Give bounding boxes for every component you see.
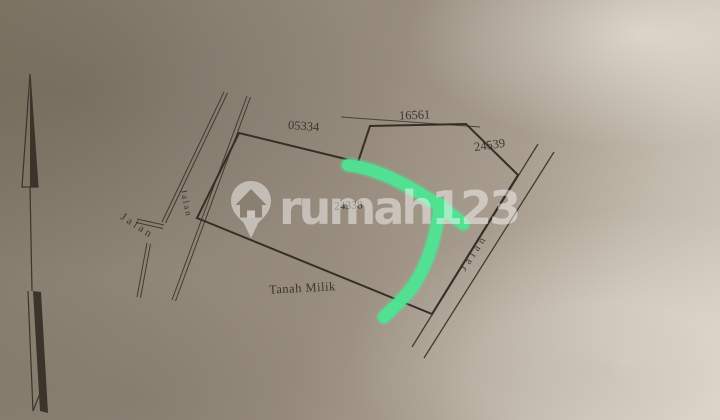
map-pin-house-icon bbox=[231, 181, 271, 238]
north-jog-label: 16561 bbox=[399, 108, 431, 122]
north-boundary-label: 05334 bbox=[288, 119, 320, 134]
photographed-survey-sketch: 05334 16561 24539 24338 Tanah Milik Jala… bbox=[0, 0, 720, 420]
north-arrow-icon bbox=[22, 74, 48, 413]
watermark-brand-text: rumah123 bbox=[279, 185, 518, 231]
